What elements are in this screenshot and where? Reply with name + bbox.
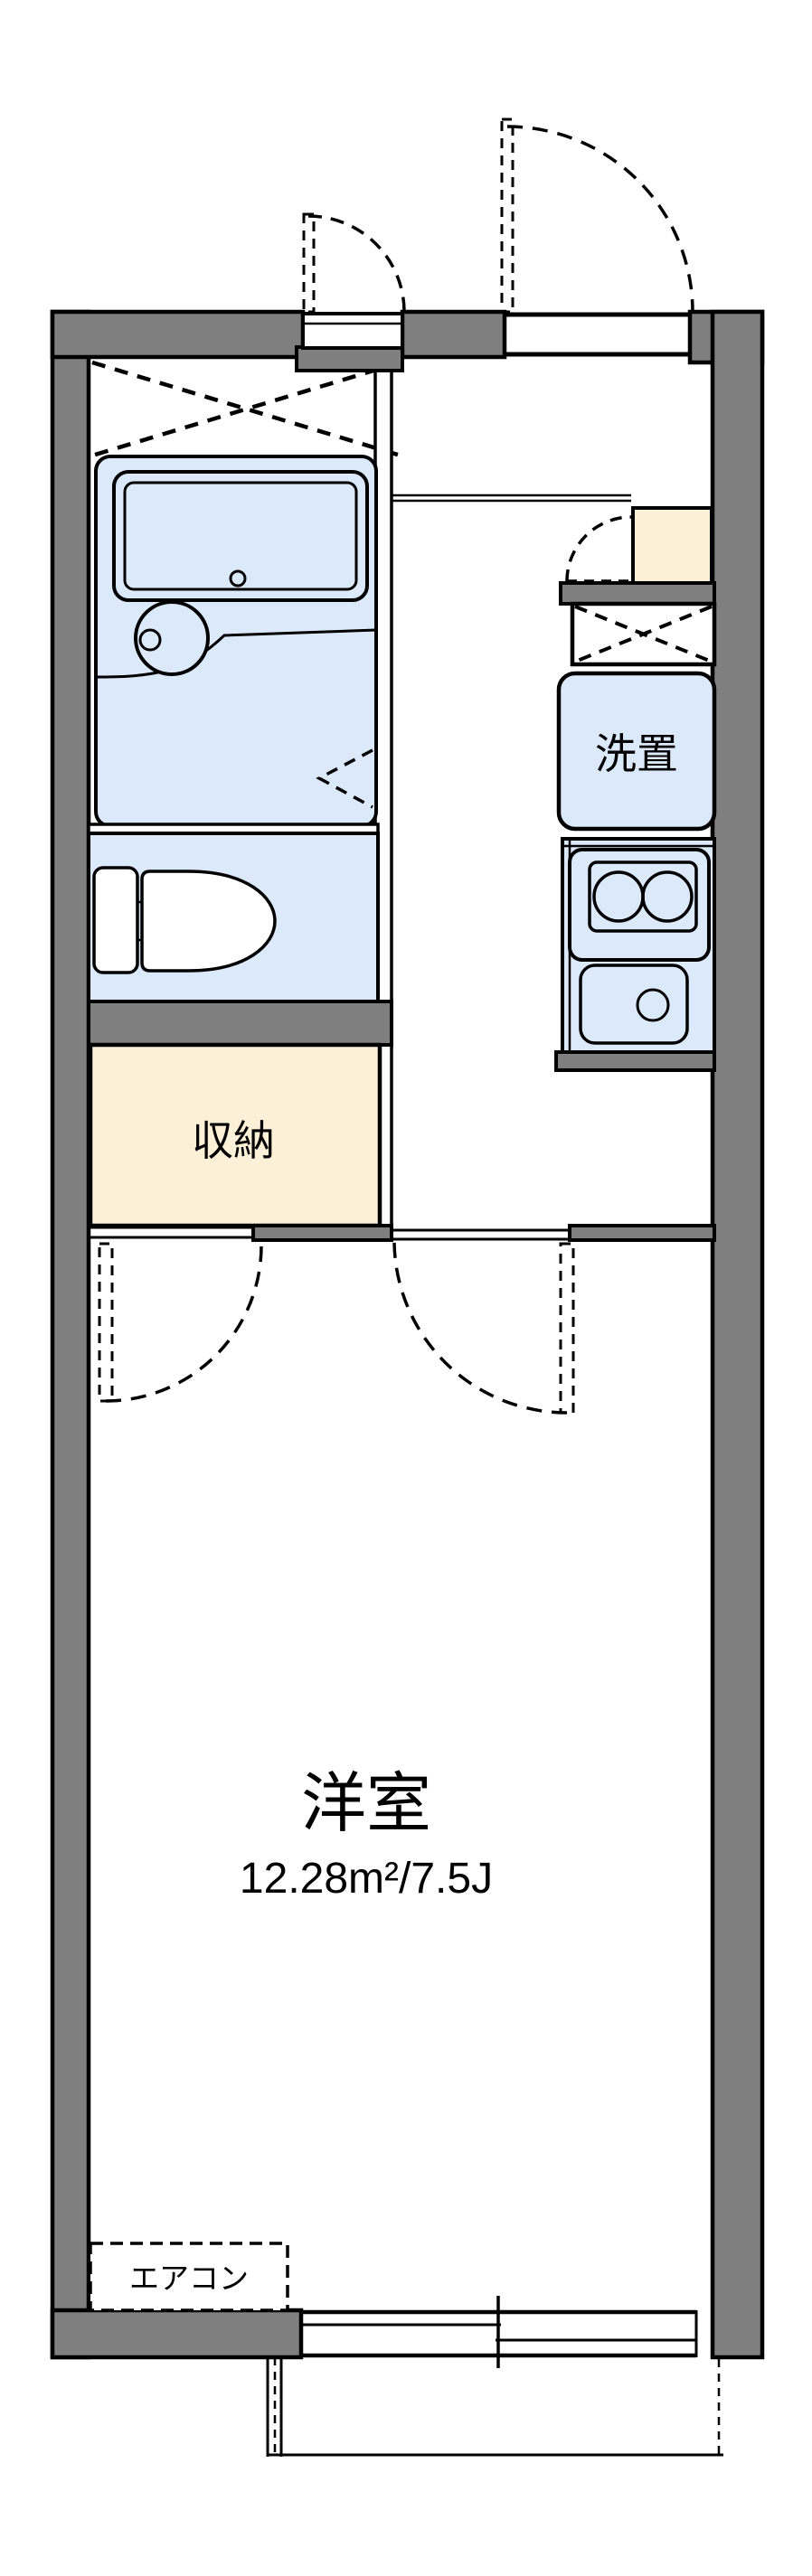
entrance-door-leaf <box>502 119 513 312</box>
wall-top-middle <box>402 312 505 357</box>
laundry-label: 洗置 <box>595 730 678 777</box>
wall-stub-kitchen <box>556 1052 714 1070</box>
genkan-step-line <box>392 495 631 501</box>
sliding-window <box>301 2296 696 2368</box>
toilet-tank <box>94 868 137 973</box>
niche-window <box>303 314 402 348</box>
niche-door-arc <box>308 216 404 312</box>
bath-vent-x <box>92 362 401 456</box>
niche-bay-wall <box>297 347 402 371</box>
wall-bottom-left <box>52 2310 301 2357</box>
floorplan-page: 収納 洗置 <box>0 0 812 2576</box>
shoe-cabinet <box>633 508 712 585</box>
floorplan-canvas: 収納 洗置 <box>0 0 812 2576</box>
washbasin <box>136 602 208 674</box>
room-door-leaf <box>561 1244 573 1413</box>
closet-door-leaf <box>99 1244 112 1401</box>
wall-outer-right <box>713 312 762 2357</box>
aircon-label: エアコン <box>129 2261 249 2295</box>
wall-toilet-storage <box>89 1001 392 1045</box>
room-door-arc <box>394 1240 567 1413</box>
balcony-outline <box>268 2357 723 2457</box>
genkan-door-arc <box>567 517 631 581</box>
wall-top-left <box>52 312 303 357</box>
kitchen-counter <box>562 839 714 1054</box>
niche-door-leaf <box>304 214 314 312</box>
storage-label: 収納 <box>192 1117 275 1164</box>
room-area-label: 12.28m²/7.5J <box>240 1855 493 1903</box>
wall-zone-bottom-b <box>570 1226 714 1240</box>
wall-zone-bottom-a <box>253 1226 392 1240</box>
wall-outer-left <box>52 312 89 2357</box>
entrance-door-arc <box>507 127 693 312</box>
wall-stub-genkan <box>561 583 714 604</box>
closet-door-arc <box>106 1246 261 1401</box>
room-name-label: 洋室 <box>301 1768 431 1840</box>
